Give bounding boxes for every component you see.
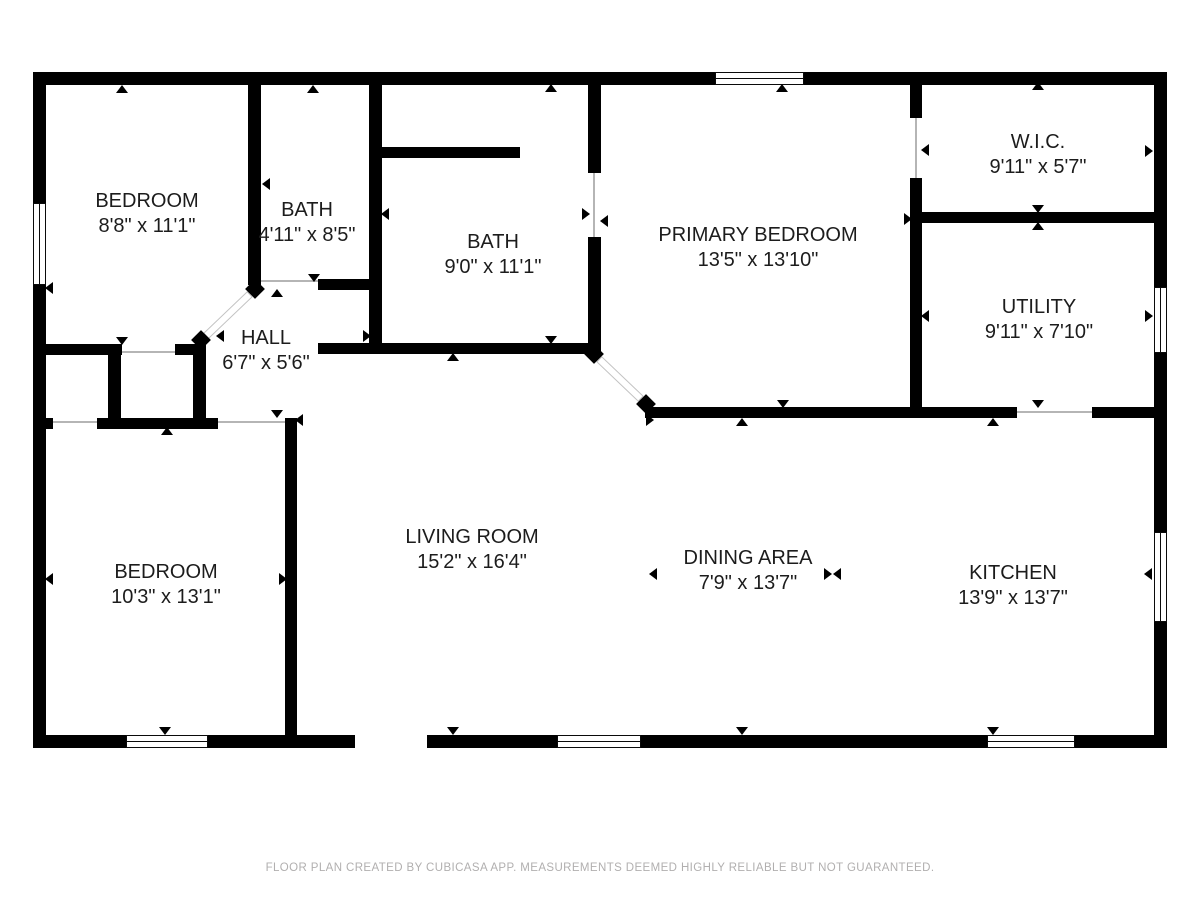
room-label-wic: W.I.C.9'11" x 5'7" <box>989 130 1086 180</box>
room-dimensions: 4'11" x 8'5" <box>258 223 355 248</box>
dimension-arrow <box>447 727 459 735</box>
door-opening <box>355 735 427 748</box>
dimension-arrow <box>987 727 999 735</box>
room-dimensions: 9'0" x 11'1" <box>444 255 541 280</box>
wall-segment <box>382 147 520 158</box>
room-name: KITCHEN <box>969 562 1057 584</box>
window <box>557 735 641 748</box>
wall-segment <box>97 418 218 429</box>
floor-plan-canvas: BEDROOM8'8" x 11'1"BATH4'11" x 8'5"BATH9… <box>0 0 1200 900</box>
window <box>715 72 804 85</box>
dimension-arrow <box>45 282 53 294</box>
room-name: BEDROOM <box>95 190 198 212</box>
wall-segment <box>1154 72 1167 748</box>
dimension-arrow <box>116 337 128 345</box>
dimension-arrow <box>600 215 608 227</box>
dimension-arrow <box>271 410 283 418</box>
dimension-arrow <box>363 330 371 342</box>
room-label-bath-small: BATH4'11" x 8'5" <box>258 198 355 248</box>
room-label-hall: HALL6'7" x 5'6" <box>222 326 309 376</box>
dimension-arrow <box>1032 205 1044 213</box>
dimension-arrow <box>447 353 459 361</box>
dimension-arrow <box>271 289 283 297</box>
wall-segment <box>588 237 601 352</box>
dimension-arrow <box>777 400 789 408</box>
dimension-arrow <box>116 85 128 93</box>
dimension-arrow <box>308 274 320 282</box>
dimension-arrow <box>159 727 171 735</box>
room-name: W.I.C. <box>1011 131 1065 153</box>
room-label-kitchen: KITCHEN13'9" x 13'7" <box>958 561 1068 611</box>
dimension-arrow <box>381 208 389 220</box>
room-dimensions: 15'2" x 16'4" <box>405 550 538 575</box>
dimension-arrow <box>646 414 654 426</box>
room-dimensions: 10'3" x 13'1" <box>111 585 221 610</box>
door-threshold-line <box>1017 411 1092 413</box>
dimension-arrow <box>1032 222 1044 230</box>
window <box>1154 532 1167 622</box>
dimension-arrow <box>1144 568 1152 580</box>
dimension-arrow <box>307 85 319 93</box>
room-name: DINING AREA <box>684 547 813 569</box>
room-label-utility: UTILITY9'11" x 7'10" <box>985 295 1093 345</box>
dimension-arrow <box>1145 145 1153 157</box>
wall-segment <box>318 343 601 354</box>
window <box>33 203 46 285</box>
dimension-arrow <box>545 84 557 92</box>
room-dimensions: 13'9" x 13'7" <box>958 586 1068 611</box>
dimension-arrow <box>1145 310 1153 322</box>
door-leaf <box>596 356 644 402</box>
dimension-arrow <box>545 336 557 344</box>
dimension-arrow <box>262 178 270 190</box>
room-name: PRIMARY BEDROOM <box>658 224 857 246</box>
wall-segment <box>46 418 53 429</box>
footer-disclaimer: FLOOR PLAN CREATED BY CUBICASA APP. MEAS… <box>0 862 1200 874</box>
wall-segment <box>1092 407 1155 418</box>
window <box>1154 287 1167 353</box>
dimension-arrow <box>736 727 748 735</box>
room-label-bedroom-bottom-left: BEDROOM10'3" x 13'1" <box>111 560 221 610</box>
dimension-arrow <box>582 208 590 220</box>
room-dimensions: 13'5" x 13'10" <box>658 248 857 273</box>
dimension-arrow <box>824 568 832 580</box>
room-name: LIVING ROOM <box>405 526 538 548</box>
room-label-bath-large: BATH9'0" x 11'1" <box>444 230 541 280</box>
wall-segment <box>193 344 206 428</box>
door-threshold-line <box>915 118 917 178</box>
door-threshold-line <box>218 421 285 423</box>
dimension-arrow <box>921 310 929 322</box>
dimension-arrow <box>904 213 912 225</box>
room-dimensions: 6'7" x 5'6" <box>222 351 309 376</box>
room-name: BEDROOM <box>114 561 217 583</box>
dimension-arrow <box>1032 82 1044 90</box>
room-dimensions: 7'9" x 13'7" <box>684 571 813 596</box>
dimension-arrow <box>736 418 748 426</box>
dimension-arrow <box>921 144 929 156</box>
room-label-dining-area: DINING AREA7'9" x 13'7" <box>684 546 813 596</box>
dimension-arrow <box>776 84 788 92</box>
dimension-arrow <box>649 568 657 580</box>
wall-segment <box>33 72 46 748</box>
wall-segment <box>108 344 121 428</box>
room-name: BATH <box>281 199 333 221</box>
room-name: HALL <box>241 327 291 349</box>
dimension-arrow <box>987 418 999 426</box>
room-label-bedroom-top-left: BEDROOM8'8" x 11'1" <box>95 189 198 239</box>
wall-segment <box>645 407 1017 418</box>
room-dimensions: 8'8" x 11'1" <box>95 214 198 239</box>
wall-segment <box>248 85 261 285</box>
dimension-arrow <box>833 568 841 580</box>
room-dimensions: 9'11" x 7'10" <box>985 320 1093 345</box>
wall-segment <box>33 72 1167 85</box>
dimension-arrow <box>1032 400 1044 408</box>
wall-segment <box>910 85 922 118</box>
window <box>126 735 208 748</box>
wall-segment <box>588 85 601 173</box>
dimension-arrow <box>279 573 287 585</box>
room-label-living-room: LIVING ROOM15'2" x 16'4" <box>405 525 538 575</box>
dimension-arrow <box>161 427 173 435</box>
dimension-arrow <box>45 573 53 585</box>
door-threshold-line <box>593 173 595 237</box>
room-name: UTILITY <box>1002 296 1076 318</box>
room-dimensions: 9'11" x 5'7" <box>989 155 1086 180</box>
door-threshold-line <box>53 421 97 423</box>
dimension-arrow <box>295 414 303 426</box>
room-label-primary-bedroom: PRIMARY BEDROOM13'5" x 13'10" <box>658 223 857 273</box>
window <box>987 735 1075 748</box>
door-threshold-line <box>122 351 175 353</box>
room-name: BATH <box>467 231 519 253</box>
